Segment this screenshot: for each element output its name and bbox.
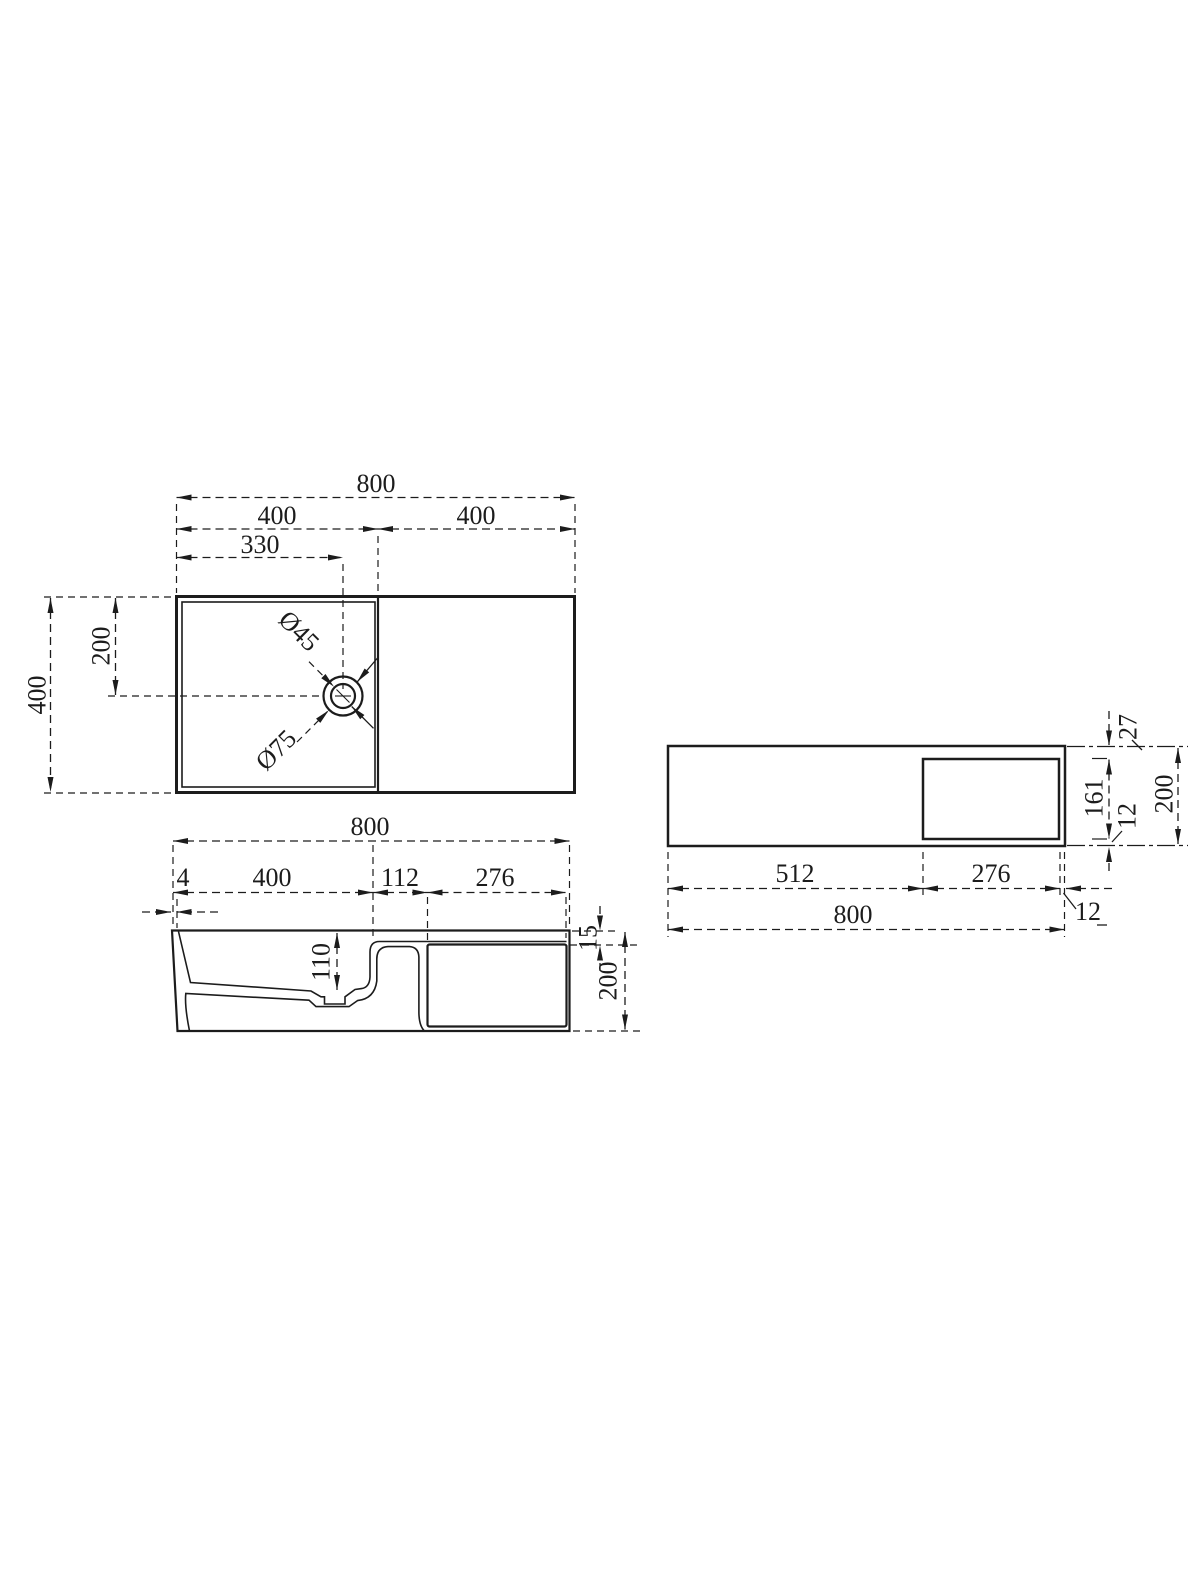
top-view: 800 400 400 330 400 200 Ø45 Ø75	[23, 469, 576, 793]
side-view: 27 161 12 200 512 276 800 12	[668, 711, 1188, 937]
drain-center-marks	[335, 690, 351, 703]
side-recess-width-label: 276	[972, 859, 1011, 888]
recess-bottom-offset-label: 12	[1113, 803, 1142, 829]
side-recess-rect	[923, 759, 1059, 839]
top-overall-width-label: 800	[357, 469, 396, 498]
side-overall-height-label: 200	[1150, 775, 1179, 814]
technical-drawing-canvas: 800 400 400 330 400 200 Ø45 Ø75	[0, 0, 1200, 1570]
side-view-extension-lines	[668, 747, 1188, 938]
recess-top-offset-label: 27	[1114, 714, 1143, 740]
top-overall-depth-label: 400	[23, 676, 52, 715]
front-bowl-width-label: 400	[253, 863, 292, 892]
under-cavity-profile	[186, 947, 425, 1031]
top-right-section-label: 400	[457, 501, 496, 530]
basin-dimension-drawing: 800 400 400 330 400 200 Ø45 Ø75	[0, 0, 1200, 1570]
side-overall-width-label: 800	[834, 900, 873, 929]
front-wall-lip-label: 4	[177, 863, 190, 892]
front-recess-width-label: 276	[476, 863, 515, 892]
side-solid-width-label: 512	[776, 859, 815, 888]
recess-height-label: 161	[1080, 779, 1109, 818]
front-overall-height-label: 200	[594, 962, 623, 1001]
bowl-depth-label: 110	[307, 943, 336, 981]
drain-hole-diameter-label: Ø45	[273, 605, 325, 657]
drain-offset-x-label: 330	[241, 530, 280, 559]
front-step-width-label: 112	[381, 863, 419, 892]
side-view-outline	[668, 746, 1065, 846]
top-left-section-label: 400	[258, 501, 297, 530]
ledge-drop-label: 15	[574, 925, 603, 951]
drain-offset-y-label: 200	[87, 627, 116, 666]
recess-edge-gap-label: 12	[1075, 897, 1101, 926]
drain-flange-diameter-label: Ø75	[250, 724, 302, 776]
front-recess-rect	[428, 945, 567, 1027]
drain-diameter-leaders	[297, 658, 378, 742]
front-overall-width-label: 800	[351, 812, 390, 841]
front-view: 800 4 400 112 276 110 15 200	[142, 812, 642, 1031]
